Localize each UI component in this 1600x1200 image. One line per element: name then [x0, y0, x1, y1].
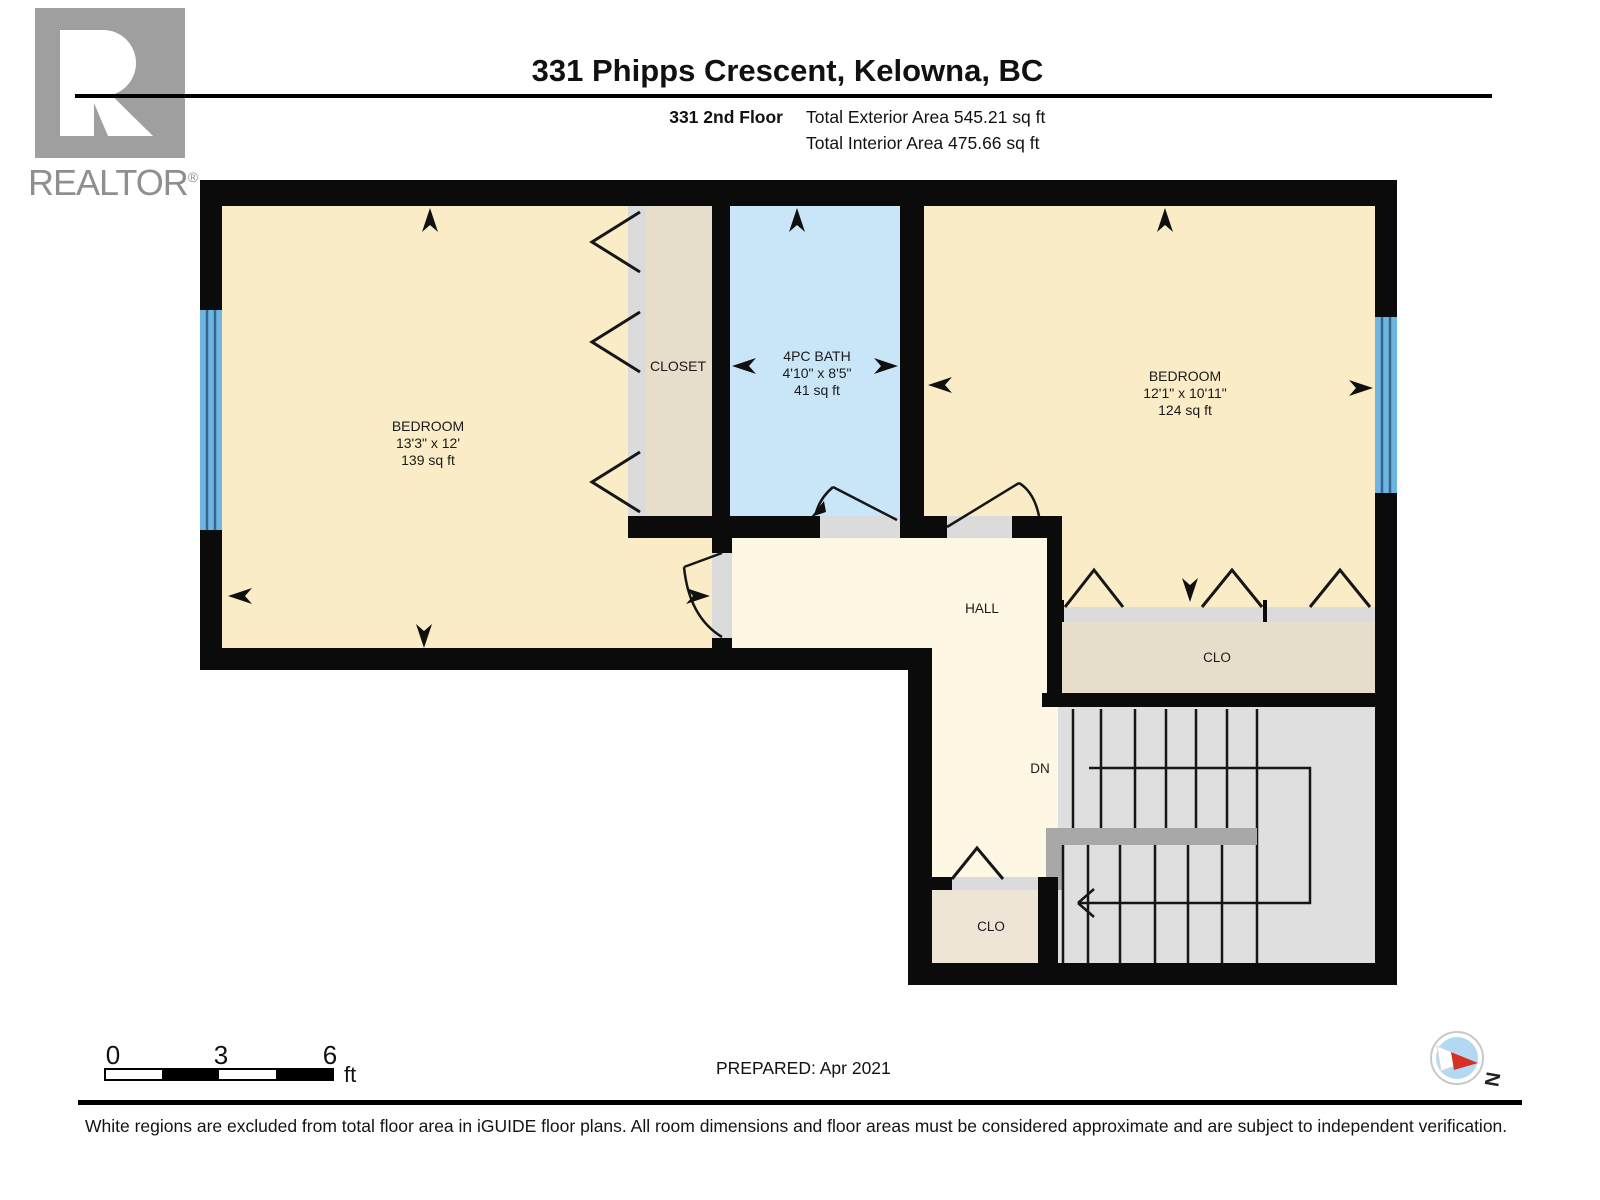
bedroom-left-name: BEDROOM — [392, 418, 464, 434]
scale-tick-3: 3 — [214, 1040, 228, 1070]
wall-closet-right-left — [1047, 516, 1062, 693]
wall-stub-closet-hall — [932, 877, 952, 890]
bedroom-left-area: 139 sq ft — [401, 452, 455, 468]
closet-hall-threshold — [952, 877, 1038, 890]
compass: N — [1431, 1032, 1504, 1088]
stair-rail-band — [1046, 828, 1257, 845]
bedroom-right-door-threshold — [947, 516, 1012, 538]
stairs-down-label: DN — [1030, 761, 1050, 776]
wall-hall-top-right — [1012, 516, 1047, 538]
bedroom-left-dims: 13'3" x 12' — [396, 435, 460, 451]
closet-right-threshold — [1062, 607, 1375, 622]
closet-hall-label: CLO — [977, 919, 1005, 934]
window-right — [1375, 317, 1397, 493]
wall-top — [200, 180, 1397, 206]
wall-bath-bedroom-right — [900, 180, 924, 538]
wall-closet-bath — [712, 180, 730, 538]
scale-tick-6: 6 — [323, 1040, 337, 1070]
closet-right-door-tick — [1060, 600, 1064, 622]
wall-right-lower — [1375, 493, 1397, 985]
wall-stub-bedroom-left-door-bottom — [712, 638, 732, 648]
bedroom-right-area: 124 sq ft — [1158, 402, 1212, 418]
bath-door-threshold — [820, 516, 900, 538]
scale-bar-segment — [276, 1069, 333, 1080]
bedroom-right-dims: 12'1" x 10'11" — [1143, 385, 1227, 401]
scale-bar-segment — [162, 1069, 219, 1080]
scale-unit-label: ft — [344, 1062, 356, 1087]
bedroom-right-name: BEDROOM — [1149, 368, 1221, 384]
bath-name: 4PC BATH — [783, 348, 850, 364]
title-divider — [75, 94, 1492, 98]
page-title: 331 Phipps Crescent, Kelowna, BC — [0, 53, 1575, 89]
closet-left-label: CLOSET — [650, 358, 706, 374]
wall-closet-hall-right — [1038, 877, 1058, 963]
bath-dims: 4'10" x 8'5" — [783, 365, 852, 381]
closet-left-track — [628, 206, 646, 516]
wall-left-upper — [200, 180, 222, 310]
hall-label: HALL — [965, 601, 999, 616]
wall-right-upper — [1375, 180, 1397, 317]
wall-bath-bottom — [730, 516, 820, 538]
bath-area: 41 sq ft — [794, 382, 840, 398]
scale-tick-0: 0 — [106, 1040, 120, 1070]
bedroom-left-door-threshold — [712, 553, 732, 638]
floor-plan-page: { "header": { "title": "331 Phipps Cresc… — [0, 0, 1600, 1200]
wall-closet-right-bottom — [1042, 693, 1397, 707]
closet-right-door-tick — [1263, 600, 1267, 622]
scale-bar: 0 3 6 ft — [105, 1040, 356, 1087]
wall-stub-bedroom-left-door-top — [712, 538, 732, 553]
wall-bottom-right-section — [908, 963, 1397, 985]
floor-plan: BEDROOM 13'3" x 12' 139 sq ft CLOSET 4PC… — [0, 0, 1600, 1200]
window-left — [200, 310, 222, 530]
wall-bottom-left-section — [200, 648, 932, 670]
wall-stub-bedroom-right-door — [924, 516, 947, 538]
closet-right-label: CLO — [1203, 650, 1231, 665]
room-hall-floor — [732, 538, 1058, 877]
north-label: N — [1480, 1070, 1504, 1088]
wall-hall-left — [908, 648, 932, 985]
wall-closet-bottom — [628, 516, 712, 538]
